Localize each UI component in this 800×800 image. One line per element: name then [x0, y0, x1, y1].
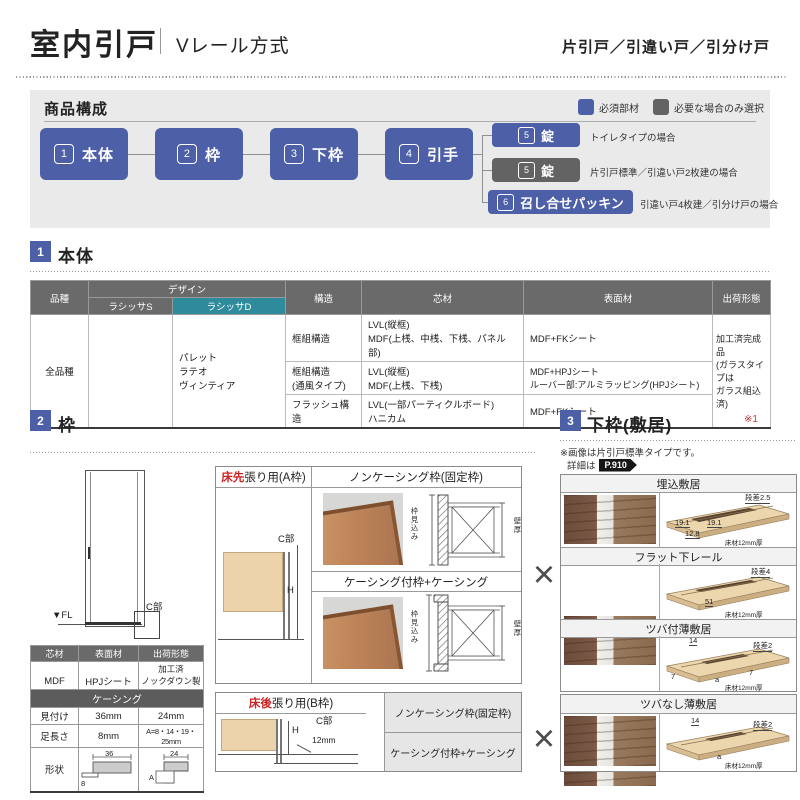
noncasing-header-a: ノンケーシング枠(固定枠)	[311, 467, 521, 488]
door-jamb-line	[137, 472, 138, 623]
section3-divider	[560, 440, 795, 441]
col-header-lasissa-d: ラシッサD	[173, 298, 286, 315]
connector	[482, 170, 492, 171]
connector	[358, 154, 385, 155]
sill-note-2: 詳細は P.910	[567, 458, 637, 472]
branch-num-5a: 5	[518, 127, 535, 144]
box-a-door-edge	[283, 552, 285, 639]
box-b-door-edge	[276, 719, 278, 763]
sill-cell-divider	[659, 636, 660, 691]
dim-floor-material: 床材12mm厚	[725, 682, 763, 692]
ref-mark: ※1	[744, 414, 758, 425]
box-b-subfloor-line	[274, 763, 358, 764]
mat-header-shipping: 出荷形態	[139, 646, 204, 662]
required-swatch	[578, 99, 594, 115]
box-b-frame-b: 床後張り用(B枠) H C部 12mm ノンケーシング枠(固定枠) ケーシング付…	[215, 692, 522, 772]
optional-label: 必要な場合のみ選択	[674, 100, 764, 115]
title-separator	[160, 28, 161, 54]
header-divider	[16, 76, 786, 78]
box-a-h-label: H	[287, 585, 294, 596]
col-header-kind: 品種	[31, 281, 89, 315]
casing-row1-v36: 36mm	[79, 708, 139, 725]
box-b-h-label: H	[292, 725, 299, 736]
dim-14: 14	[691, 716, 699, 726]
spec-table-wrap: 品種 デザイン 構造 芯材 表面材 出荷形態 ラシッサS ラシッサD 全品種 パ…	[30, 280, 771, 429]
branch-label-lock-a: 錠	[541, 126, 554, 145]
box-a-header-rest: 張り用(A枠)	[244, 469, 305, 485]
connector	[482, 135, 492, 136]
mat-header-surface: 表面材	[79, 646, 139, 662]
box-b-dim-line	[288, 721, 289, 754]
box-b-12mm-label: 12mm	[312, 735, 336, 745]
branch-note-standard: 片引戸標準／引違い戸2枚建の場合	[590, 165, 738, 179]
photo-door-noncasing	[323, 493, 403, 565]
section3-title: 下枠(敷居)	[587, 411, 672, 436]
branch-box-lock-optional: 5 錠	[492, 158, 580, 182]
flow-label-sill: 下枠	[312, 144, 344, 165]
photo-floor-umekomi	[564, 495, 656, 544]
col-header-core: 芯材	[362, 281, 524, 315]
flow-box-frame: 2 枠	[155, 128, 243, 180]
section3-badge: 3	[560, 410, 581, 431]
dim-36: 36	[105, 749, 113, 758]
col-header-design: デザイン	[89, 281, 286, 298]
box-a-header: 床先張り用(A枠)	[216, 467, 311, 488]
sill-table-main: 埋込敷居 段差2.5 19.1 19.1 12.8 床材12mm厚 フラット下レ…	[560, 474, 797, 692]
cell-surface-1: MDF+FKシート	[524, 315, 713, 362]
box-a-c-label: C部	[278, 531, 294, 545]
box-b-door-edge	[280, 719, 282, 763]
connector	[473, 154, 482, 155]
cell-design-d: パレット ラテオ ヴィンティア	[173, 315, 286, 429]
casing-title-b: ケーシング付枠+ケーシング	[390, 745, 515, 760]
box-b-header: 床後張り用(B枠)	[216, 693, 366, 714]
cell-structure-2: 框組構造 (通風タイプ)	[286, 362, 362, 395]
sill-cell-divider	[659, 713, 660, 771]
flow-num-2: 2	[177, 144, 197, 164]
wall-thickness-label: 壁厚	[512, 517, 523, 534]
page-ref-badge: P.910	[599, 459, 637, 472]
wall-thickness-label: 壁厚	[512, 620, 523, 637]
dim-floor-material: 床材12mm厚	[725, 760, 763, 770]
casing-title: ケーシング	[31, 690, 204, 708]
mat-header-core: 芯材	[31, 646, 79, 662]
box-a-baseline	[218, 639, 304, 640]
sill-title-flat: フラット下レール	[635, 549, 723, 565]
dim-step: 段差2.5	[745, 492, 770, 504]
catalog-page: 室内引戸 Vレール方式 片引戸／引違い戸／引分け戸 商品構成 必須部材 必要な場…	[0, 0, 800, 800]
box-a-frame-a: 床先張り用(A枠) C部 H ノンケーシング枠(固定枠) 枠見込み	[215, 466, 522, 684]
dim-51: 51	[705, 597, 713, 607]
xsec-casing: 枠見込み 壁厚	[408, 594, 521, 672]
dim-19-1a: 19.1	[675, 518, 690, 528]
cell-core-2: LVL(縦框) MDF(上桟、下桟)	[362, 362, 524, 395]
door-wood-texture	[323, 500, 403, 565]
cell-core-3: LVL(一部パーティクルボード) ハニカム	[362, 395, 524, 429]
dim-step: 段差4	[751, 566, 770, 578]
cross-mark: ×	[526, 720, 562, 758]
casing-table-wrap: ケーシング 見付け 36mm 24mm 足長さ 8mm A=8・14・19・25…	[30, 689, 204, 793]
fl-label: ▼FL	[52, 610, 73, 621]
flow-num-4: 4	[399, 144, 419, 164]
c-section-callout-box	[134, 611, 160, 639]
section1-badge: 1	[30, 241, 51, 262]
dim-a: A	[149, 773, 154, 782]
flow-label-frame: 枠	[205, 144, 221, 165]
casing-row1-label: 見付け	[31, 708, 79, 725]
photo-floor-tsubanashi	[564, 716, 656, 766]
box-b-c-label: C部	[316, 713, 332, 727]
cell-shipping: 加工済完成品 (ガラスタイプは ガラス組込済)	[713, 315, 771, 429]
casing-row2-v36: 8mm	[79, 725, 139, 748]
sill-diagram-flat: 段差4 51 床材12mm厚	[661, 564, 794, 618]
col-header-surface: 表面材	[524, 281, 713, 315]
dim-floor-material: 床材12mm厚	[725, 537, 763, 547]
casing-shape-24: 24 A	[139, 748, 204, 792]
required-label: 必須部材	[599, 100, 639, 115]
casing-row2-v24: A=8・14・19・25mm	[139, 725, 204, 748]
sill-title-umekomi: 埋込敷居	[657, 476, 701, 492]
dim-19-1b: 19.1	[707, 518, 722, 528]
optional-swatch	[653, 99, 669, 115]
noncasing-title-b: ノンケーシング枠(固定枠)	[395, 705, 511, 720]
sill-band-tsubanashi: ツバなし薄敷居	[561, 695, 796, 714]
sill-note-1: ※画像は片引戸標準タイプです。	[560, 445, 700, 459]
casing-header-a: ケーシング付枠+ケーシング	[311, 571, 521, 592]
dim-7a: 7	[671, 672, 675, 681]
branch-label-lock-b: 錠	[541, 161, 554, 180]
legend-optional: 必要な場合のみ選択	[653, 99, 764, 115]
frame-depth-label: 枠見込み	[409, 610, 420, 644]
connector	[128, 154, 155, 155]
section1-title: 本体	[58, 242, 94, 267]
section2-title: 枠	[58, 411, 76, 436]
page-title: 室内引戸	[30, 20, 158, 64]
detail-label: 詳細は	[567, 458, 596, 472]
box-b-leader-line	[297, 744, 312, 752]
door-wood-texture	[323, 604, 403, 669]
sill-diagram-tsubanashi: 14 段差2 a 床材12mm厚	[661, 714, 794, 768]
dim-14: 14	[689, 636, 697, 646]
casing-cell-b: ケーシング付枠+ケーシング	[385, 733, 521, 771]
composition-underline	[44, 121, 756, 122]
cell-structure-1: 框組構造	[286, 315, 362, 362]
xsec-noncasing: 枠見込み 壁厚	[408, 491, 521, 569]
composition-title: 商品構成	[44, 98, 108, 119]
dim-step: 段差2	[753, 719, 772, 731]
sill-diagram-tsuba: 14 段差2 7 a 7 床材12mm厚	[661, 636, 794, 690]
dim-floor-material: 床材12mm厚	[725, 609, 763, 619]
page-subtitle: Vレール方式	[176, 31, 290, 58]
cell-surface-2: MDF+HPJシート ルーバー部:アルミラッピング(HPJシート)	[524, 362, 713, 395]
casing-row2-label: 足長さ	[31, 725, 79, 748]
section1-divider	[30, 271, 770, 272]
casing-table: ケーシング 見付け 36mm 24mm 足長さ 8mm A=8・14・19・25…	[30, 689, 204, 793]
cell-core-1: LVL(縦框) MDF(上桟、中桟、下桟、パネル部)	[362, 315, 524, 362]
flow-num-1: 1	[54, 144, 74, 164]
dim-7b: 7	[749, 668, 753, 677]
threshold-line	[85, 622, 141, 625]
section2-divider	[30, 452, 535, 453]
box-b-floor-line	[218, 754, 358, 755]
dim-step: 段差2	[753, 640, 772, 652]
dim-a: a	[715, 675, 719, 684]
col-header-shipping: 出荷形態	[713, 281, 771, 315]
door-handle	[88, 547, 90, 559]
noncasing-cell-b: ノンケーシング枠(固定枠)	[385, 693, 521, 733]
section2-badge: 2	[30, 410, 51, 431]
flow-box-body: 1 本体	[40, 128, 128, 180]
spec-table: 品種 デザイン 構造 芯材 表面材 出荷形態 ラシッサS ラシッサD 全品種 パ…	[30, 280, 771, 429]
sill-cell-divider	[659, 492, 660, 547]
box-b-floorboard	[221, 719, 277, 751]
branch-box-lock-toilet: 5 錠	[492, 123, 580, 147]
xsec-noncasing-svg	[422, 491, 506, 569]
sill-band-umekomi: 埋込敷居	[561, 475, 796, 493]
box-a-floorboard	[223, 552, 283, 612]
casing-title-a: ケーシング付枠+ケーシング	[344, 574, 488, 590]
sill-title-tsuba: ツバ付薄敷居	[646, 621, 712, 637]
col-header-lasissa-s: ラシッサS	[89, 298, 173, 315]
photo-door-casing	[323, 597, 403, 669]
casing-shape-label: 形状	[31, 748, 79, 792]
col-header-structure: 構造	[286, 281, 362, 315]
sill-table-separate: ツバなし薄敷居 14 段差2 a 床材12mm厚	[560, 694, 797, 772]
flow-box-handle: 4 引手	[385, 128, 473, 180]
flow-num-3: 3	[284, 144, 304, 164]
dim-a: a	[717, 752, 721, 761]
box-a-header-red: 床先	[221, 469, 244, 485]
casing-row1-v24: 24mm	[139, 708, 204, 725]
sill-title-tsubanashi: ツバなし薄敷居	[640, 696, 717, 712]
door-jamb-line	[90, 472, 91, 623]
box-b-header-red: 床後	[249, 695, 272, 711]
casing-shape-36: 36 8	[79, 748, 139, 792]
flow-box-sill: 3 下枠	[270, 128, 358, 180]
connector-vertical	[482, 135, 483, 202]
branch-num-5b: 5	[518, 162, 535, 179]
cross-mark: ×	[526, 556, 562, 594]
xsec-casing-svg	[422, 594, 506, 672]
branch-num-6: 6	[497, 194, 514, 211]
door-elevation-diagram	[85, 470, 145, 627]
box-b-header-rest: 張り用(B枠)	[272, 695, 333, 711]
composition-panel: 商品構成 必須部材 必要な場合のみ選択 1 本体 2 枠 3 下枠 4	[30, 90, 770, 228]
branch-note-packing: 引違い戸4枚建／引分け戸の場合	[640, 197, 778, 211]
sill-diagram-umekomi: 段差2.5 19.1 19.1 12.8 床材12mm厚	[661, 492, 794, 546]
dim-24: 24	[170, 749, 178, 758]
branch-label-packing: 召し合せパッキン	[520, 193, 624, 212]
connector	[243, 154, 270, 155]
dim-12-8: 12.8	[685, 529, 700, 539]
sill-cell-divider	[659, 564, 660, 619]
cell-design-s	[89, 315, 173, 429]
branch-note-toilet: トイレタイプの場合	[590, 130, 676, 144]
flow-label-handle: 引手	[427, 144, 459, 165]
parts-legend: 必須部材 必要な場合のみ選択	[578, 99, 764, 115]
box-a-dim-line	[297, 545, 298, 639]
cell-structure-3: フラッシュ構造	[286, 395, 362, 429]
door-types-label: 片引戸／引違い戸／引分け戸	[562, 36, 770, 57]
noncasing-title-a: ノンケーシング枠(固定枠)	[349, 469, 483, 485]
dim-8: 8	[81, 779, 85, 788]
frame-depth-label: 枠見込み	[409, 507, 420, 541]
branch-box-packing: 6 召し合せパッキン	[488, 190, 633, 214]
flow-label-body: 本体	[82, 144, 114, 165]
legend-required: 必須部材	[578, 99, 639, 115]
